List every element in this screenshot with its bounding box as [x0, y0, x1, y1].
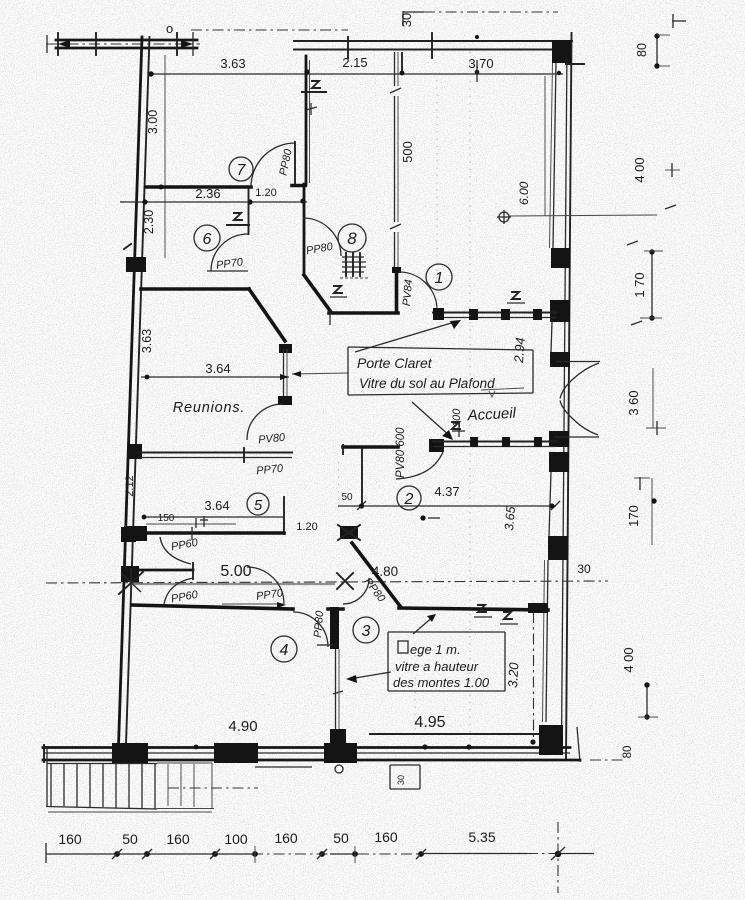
svg-text:vitre a hauteur: vitre a hauteur	[395, 659, 479, 674]
svg-text:30: 30	[577, 562, 591, 576]
svg-text:o: o	[166, 21, 173, 36]
svg-text:1: 1	[435, 270, 444, 287]
svg-text:PV84: PV84	[401, 279, 415, 307]
svg-text:4: 4	[280, 642, 289, 659]
svg-text:4.95: 4.95	[414, 714, 445, 731]
svg-text:3 60: 3 60	[626, 390, 641, 415]
svg-text:1 70: 1 70	[632, 272, 647, 297]
svg-text:500: 500	[400, 141, 415, 163]
svg-text:PP80: PP80	[312, 610, 326, 639]
svg-text:4 00: 4 00	[632, 157, 647, 182]
svg-text:3.20: 3.20	[505, 661, 521, 688]
svg-text:2: 2	[404, 491, 414, 508]
svg-text:3.63: 3.63	[140, 329, 154, 353]
svg-text:30: 30	[399, 13, 414, 27]
svg-text:5: 5	[254, 497, 263, 514]
svg-text:160: 160	[274, 830, 298, 846]
svg-text:3: 3	[362, 623, 371, 640]
svg-text:160: 160	[374, 829, 398, 845]
svg-text:ege 1 m.: ege 1 m.	[410, 642, 461, 657]
svg-text:50: 50	[333, 830, 349, 846]
svg-text:Accueil: Accueil	[466, 405, 517, 425]
svg-text:Reunions.: Reunions.	[173, 400, 246, 416]
svg-text:Porte Claret: Porte Claret	[357, 355, 433, 371]
svg-text:80: 80	[622, 746, 634, 759]
svg-text:50: 50	[341, 492, 353, 503]
svg-text:80: 80	[635, 43, 649, 57]
svg-text:7: 7	[237, 162, 247, 179]
svg-text:des montes 1.00: des montes 1.00	[393, 675, 490, 690]
svg-text:6: 6	[203, 231, 212, 248]
svg-text:3.64: 3.64	[204, 498, 229, 513]
svg-text:5.35: 5.35	[468, 829, 495, 845]
svg-text:160: 160	[166, 831, 190, 847]
svg-text:30: 30	[396, 775, 406, 785]
svg-text:2.12: 2.12	[124, 475, 136, 496]
svg-text:2.15: 2.15	[342, 55, 367, 70]
svg-text:160: 160	[58, 831, 82, 847]
svg-text:2.36: 2.36	[195, 186, 220, 201]
svg-text:PV80 600: PV80 600	[395, 427, 407, 478]
svg-text:8: 8	[347, 229, 357, 248]
svg-text:2.30: 2.30	[142, 210, 156, 234]
svg-text:4 00: 4 00	[621, 647, 636, 672]
svg-text:170: 170	[626, 505, 641, 527]
svg-text:150: 150	[158, 513, 175, 524]
svg-text:50: 50	[122, 831, 138, 847]
svg-text:4.37: 4.37	[434, 484, 459, 499]
svg-text:3.64: 3.64	[205, 361, 230, 376]
svg-text:100: 100	[224, 831, 248, 847]
svg-text:6.00: 6.00	[517, 181, 531, 205]
svg-text:5.00: 5.00	[220, 563, 251, 580]
svg-text:1.20: 1.20	[296, 521, 317, 533]
svg-text:1.20: 1.20	[255, 187, 276, 199]
svg-text:3.65: 3.65	[502, 506, 518, 532]
svg-text:4.80: 4.80	[372, 564, 398, 579]
svg-text:3.00: 3.00	[146, 110, 160, 134]
svg-text:3.63: 3.63	[220, 56, 245, 71]
svg-text:Vitre du sol au Plafond: Vitre du sol au Plafond	[359, 376, 495, 391]
svg-text:2.94: 2.94	[511, 337, 528, 364]
svg-text:3.70: 3.70	[468, 56, 493, 71]
svg-text:4.90: 4.90	[228, 718, 257, 735]
